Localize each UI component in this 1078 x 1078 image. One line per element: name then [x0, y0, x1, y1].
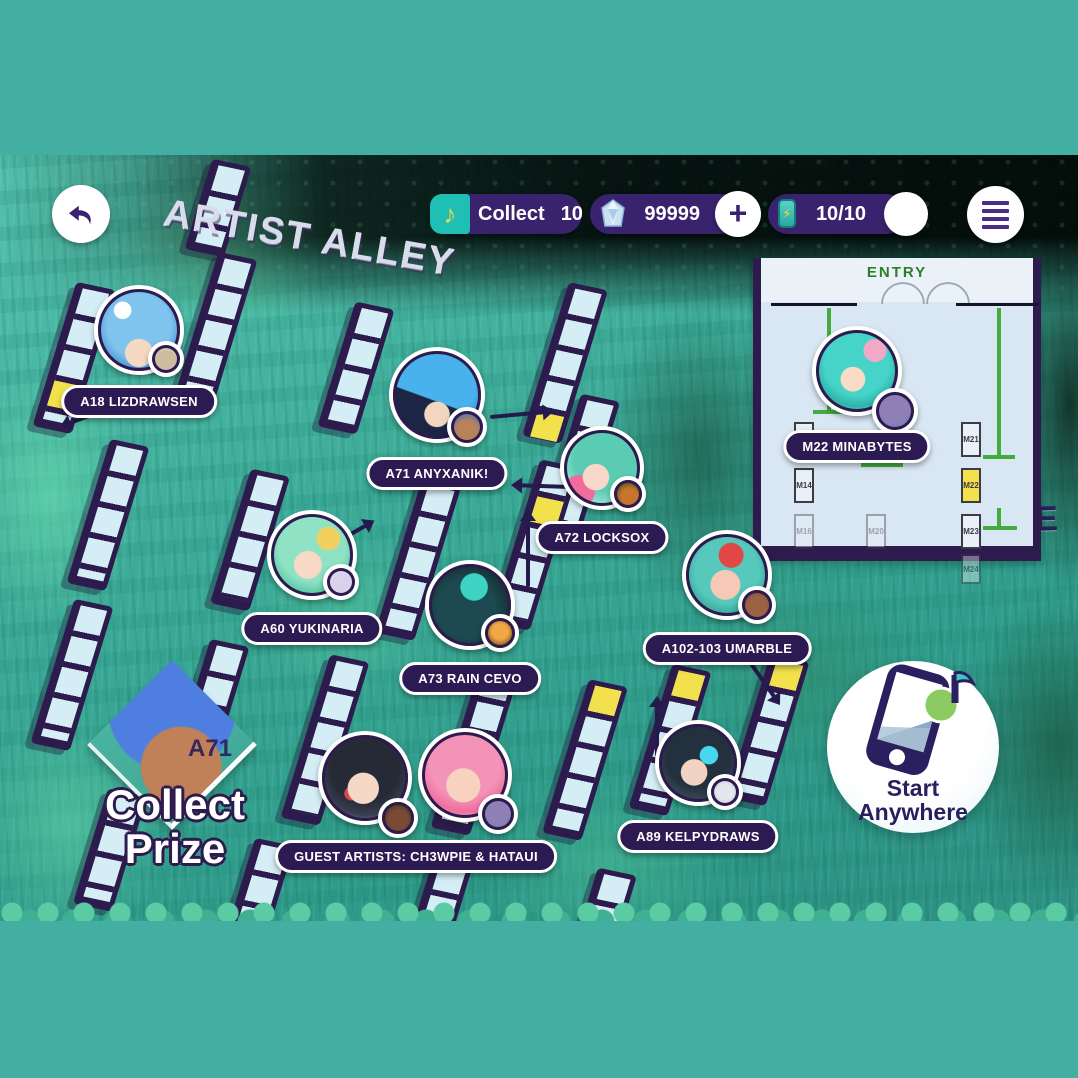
artist-avatar-secondary	[481, 614, 519, 652]
booth-table	[542, 679, 628, 841]
minimap-stall-m16: M16	[794, 514, 814, 549]
profile-circle[interactable]	[884, 192, 928, 236]
minimap-stall-m14: M14	[794, 468, 814, 503]
aisle-line	[983, 526, 1017, 530]
prize-label-line1: Collect	[70, 781, 280, 829]
collect-prize-button[interactable]: A71 Collect Prize	[70, 653, 300, 893]
minimap-entry-label: ENTRY	[761, 264, 1033, 281]
minimap-stall-m21: M21	[961, 422, 981, 457]
booth-table	[66, 439, 149, 591]
music-note-icon: ♪	[430, 194, 470, 234]
start-label-line2: Anywhere	[827, 799, 999, 826]
crystal-icon	[600, 199, 626, 229]
collect-quest-pill[interactable]: ♪ Collect 10	[430, 194, 582, 234]
highlighted-booth-cell	[588, 686, 622, 717]
artist-avatar-secondary	[323, 564, 359, 600]
artist-avatar-secondary	[378, 798, 418, 838]
aisle-line	[997, 308, 1001, 458]
energy-value: 10/10	[816, 203, 866, 226]
start-anywhere-button[interactable]: Start Anywhere	[827, 661, 999, 833]
booth-label-pill: A71 ANYXANIK!	[366, 457, 507, 490]
currency-pill[interactable]: 99999 +	[590, 194, 740, 234]
minimap-stall-m22: M22	[961, 468, 981, 503]
grass-fringe	[0, 893, 1078, 921]
booth-label-pill: A60 YUKINARIA	[241, 612, 382, 645]
add-currency-button[interactable]: +	[715, 191, 761, 237]
booth-label-pill: A72 LOCKSOX	[535, 521, 668, 554]
game-screen: ARTIST ALLEY ENTRY M13 M14 M16 M20 M21 M…	[0, 0, 1078, 1078]
collect-count: 10	[561, 203, 583, 226]
start-label-line1: Start	[827, 775, 999, 802]
aisle-line	[983, 455, 1015, 459]
prize-booth-id: A71	[188, 735, 232, 763]
booth-arrow	[520, 483, 568, 489]
minimap-wall	[956, 303, 1039, 306]
artist-avatar-secondary	[872, 388, 918, 434]
minimap-wall	[771, 303, 857, 306]
menu-button[interactable]	[967, 186, 1024, 243]
back-button[interactable]	[52, 185, 110, 243]
hamburger-menu-icon	[982, 201, 1009, 229]
booth-arrow	[526, 519, 530, 587]
aisle-line	[997, 508, 1001, 528]
artist-avatar-secondary	[610, 476, 646, 512]
booth-label-pill: GUEST ARTISTS: CH3WPIE & HATAUI	[275, 840, 557, 873]
artist-avatar-secondary	[707, 774, 743, 810]
prize-label-line2: Prize	[70, 825, 280, 873]
energy-can-icon: ⚡	[778, 199, 796, 228]
booth-table	[317, 301, 394, 434]
plus-icon: +	[729, 197, 748, 229]
booth-label-pill: A102-103 UMARBLE	[643, 632, 812, 665]
artist-avatar-secondary	[447, 407, 487, 447]
currency-value: 99999	[644, 203, 700, 226]
back-arrow-icon	[63, 196, 99, 232]
artist-avatar-secondary	[738, 586, 776, 624]
phone-music-icon	[837, 663, 987, 793]
highlighted-booth-cell	[671, 670, 705, 701]
collect-label: Collect	[478, 203, 545, 226]
artist-avatar-secondary	[478, 794, 518, 834]
aisle-line	[861, 463, 903, 467]
minimap-stall-m20: M20	[866, 514, 886, 549]
minimap-stall-m24: M24	[961, 554, 981, 584]
energy-pill[interactable]: ⚡ 10/10	[768, 194, 906, 234]
booth-label-pill: A73 RAIN CEVO	[399, 662, 541, 695]
minimap-stall-m23: M23	[961, 514, 981, 549]
artist-avatar-secondary	[148, 341, 184, 377]
booth-label-pill: A18 LIZDRAWSEN	[61, 385, 217, 418]
booth-label-pill: M22 MINABYTES	[783, 430, 930, 463]
artist-alley-map: ARTIST ALLEY ENTRY M13 M14 M16 M20 M21 M…	[0, 155, 1078, 921]
booth-label-pill: A89 KELPYDRAWS	[617, 820, 778, 853]
entry-door-arc	[881, 282, 925, 326]
